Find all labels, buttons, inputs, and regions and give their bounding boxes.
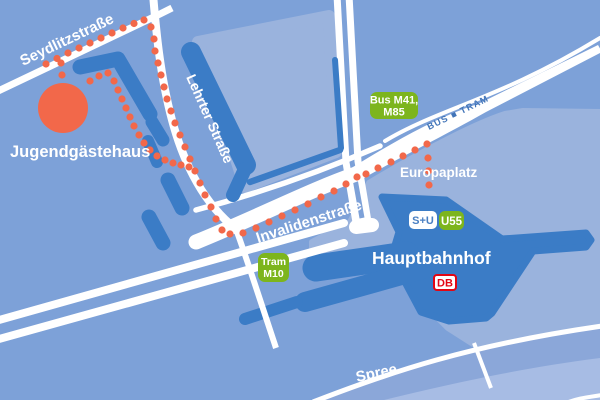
svg-text:U55: U55 <box>441 216 463 228</box>
svg-text:Bus M41,: Bus M41, <box>370 95 418 107</box>
svg-text:Tram: Tram <box>261 256 286 268</box>
svg-text:M85: M85 <box>383 107 404 119</box>
svg-text:DB: DB <box>437 278 453 290</box>
svg-text:S+U: S+U <box>412 215 434 227</box>
svg-text:Hauptbahnhof: Hauptbahnhof <box>372 248 491 268</box>
svg-text:M10: M10 <box>263 268 284 280</box>
svg-text:Jugendgästehaus: Jugendgästehaus <box>10 143 150 161</box>
svg-text:Europaplatz: Europaplatz <box>400 165 478 180</box>
